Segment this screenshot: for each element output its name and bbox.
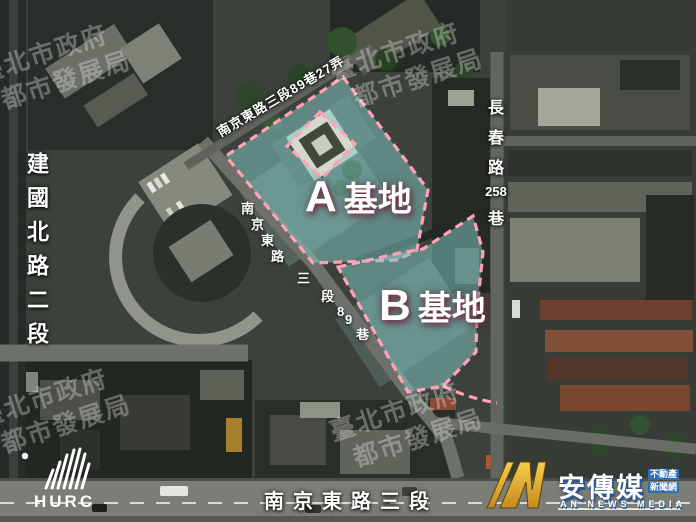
street-label-jianguo-north-rd: 建國北路二段 xyxy=(20,152,52,356)
site-b-letter: B xyxy=(379,284,411,328)
street-label-changchun-rd-lane258: 長春路258巷 xyxy=(480,94,512,229)
hurc-logo-text: HURC xyxy=(34,492,95,512)
street-label-char: 路 xyxy=(488,154,504,178)
street-label-nanjing-e-rd-sec3: 南京東路三段 xyxy=(264,485,438,514)
aerial-map-graphic: 臺北市政府 都市發展局 臺北市政府 都市發展局 臺北市政府 都市發展局 臺北市政… xyxy=(0,0,696,522)
street-label-char: 258 xyxy=(485,184,507,199)
site-a-letter: A xyxy=(305,175,337,219)
site-b-word: 基地 xyxy=(418,292,486,326)
an-media-tag-news: 新聞網 xyxy=(648,482,679,493)
site-b-label: B 基地 xyxy=(379,284,486,328)
street-label-char: 長 xyxy=(488,94,504,118)
site-a-word: 基地 xyxy=(344,183,412,217)
site-a-label: A 基地 xyxy=(305,175,412,219)
street-label-char: 巷 xyxy=(488,205,504,229)
an-media-logo: 安傳媒 不動產 新聞網 AN NEWS MEDIA xyxy=(486,452,692,516)
an-media-tag-realestate: 不動產 xyxy=(648,469,679,480)
an-monogram-icon xyxy=(486,460,558,510)
an-media-tags: 不動產 新聞網 xyxy=(648,469,679,493)
an-media-name-en: AN NEWS MEDIA xyxy=(560,499,686,509)
street-label-char: 春 xyxy=(488,124,504,148)
hurc-logo: HURC xyxy=(20,446,106,516)
